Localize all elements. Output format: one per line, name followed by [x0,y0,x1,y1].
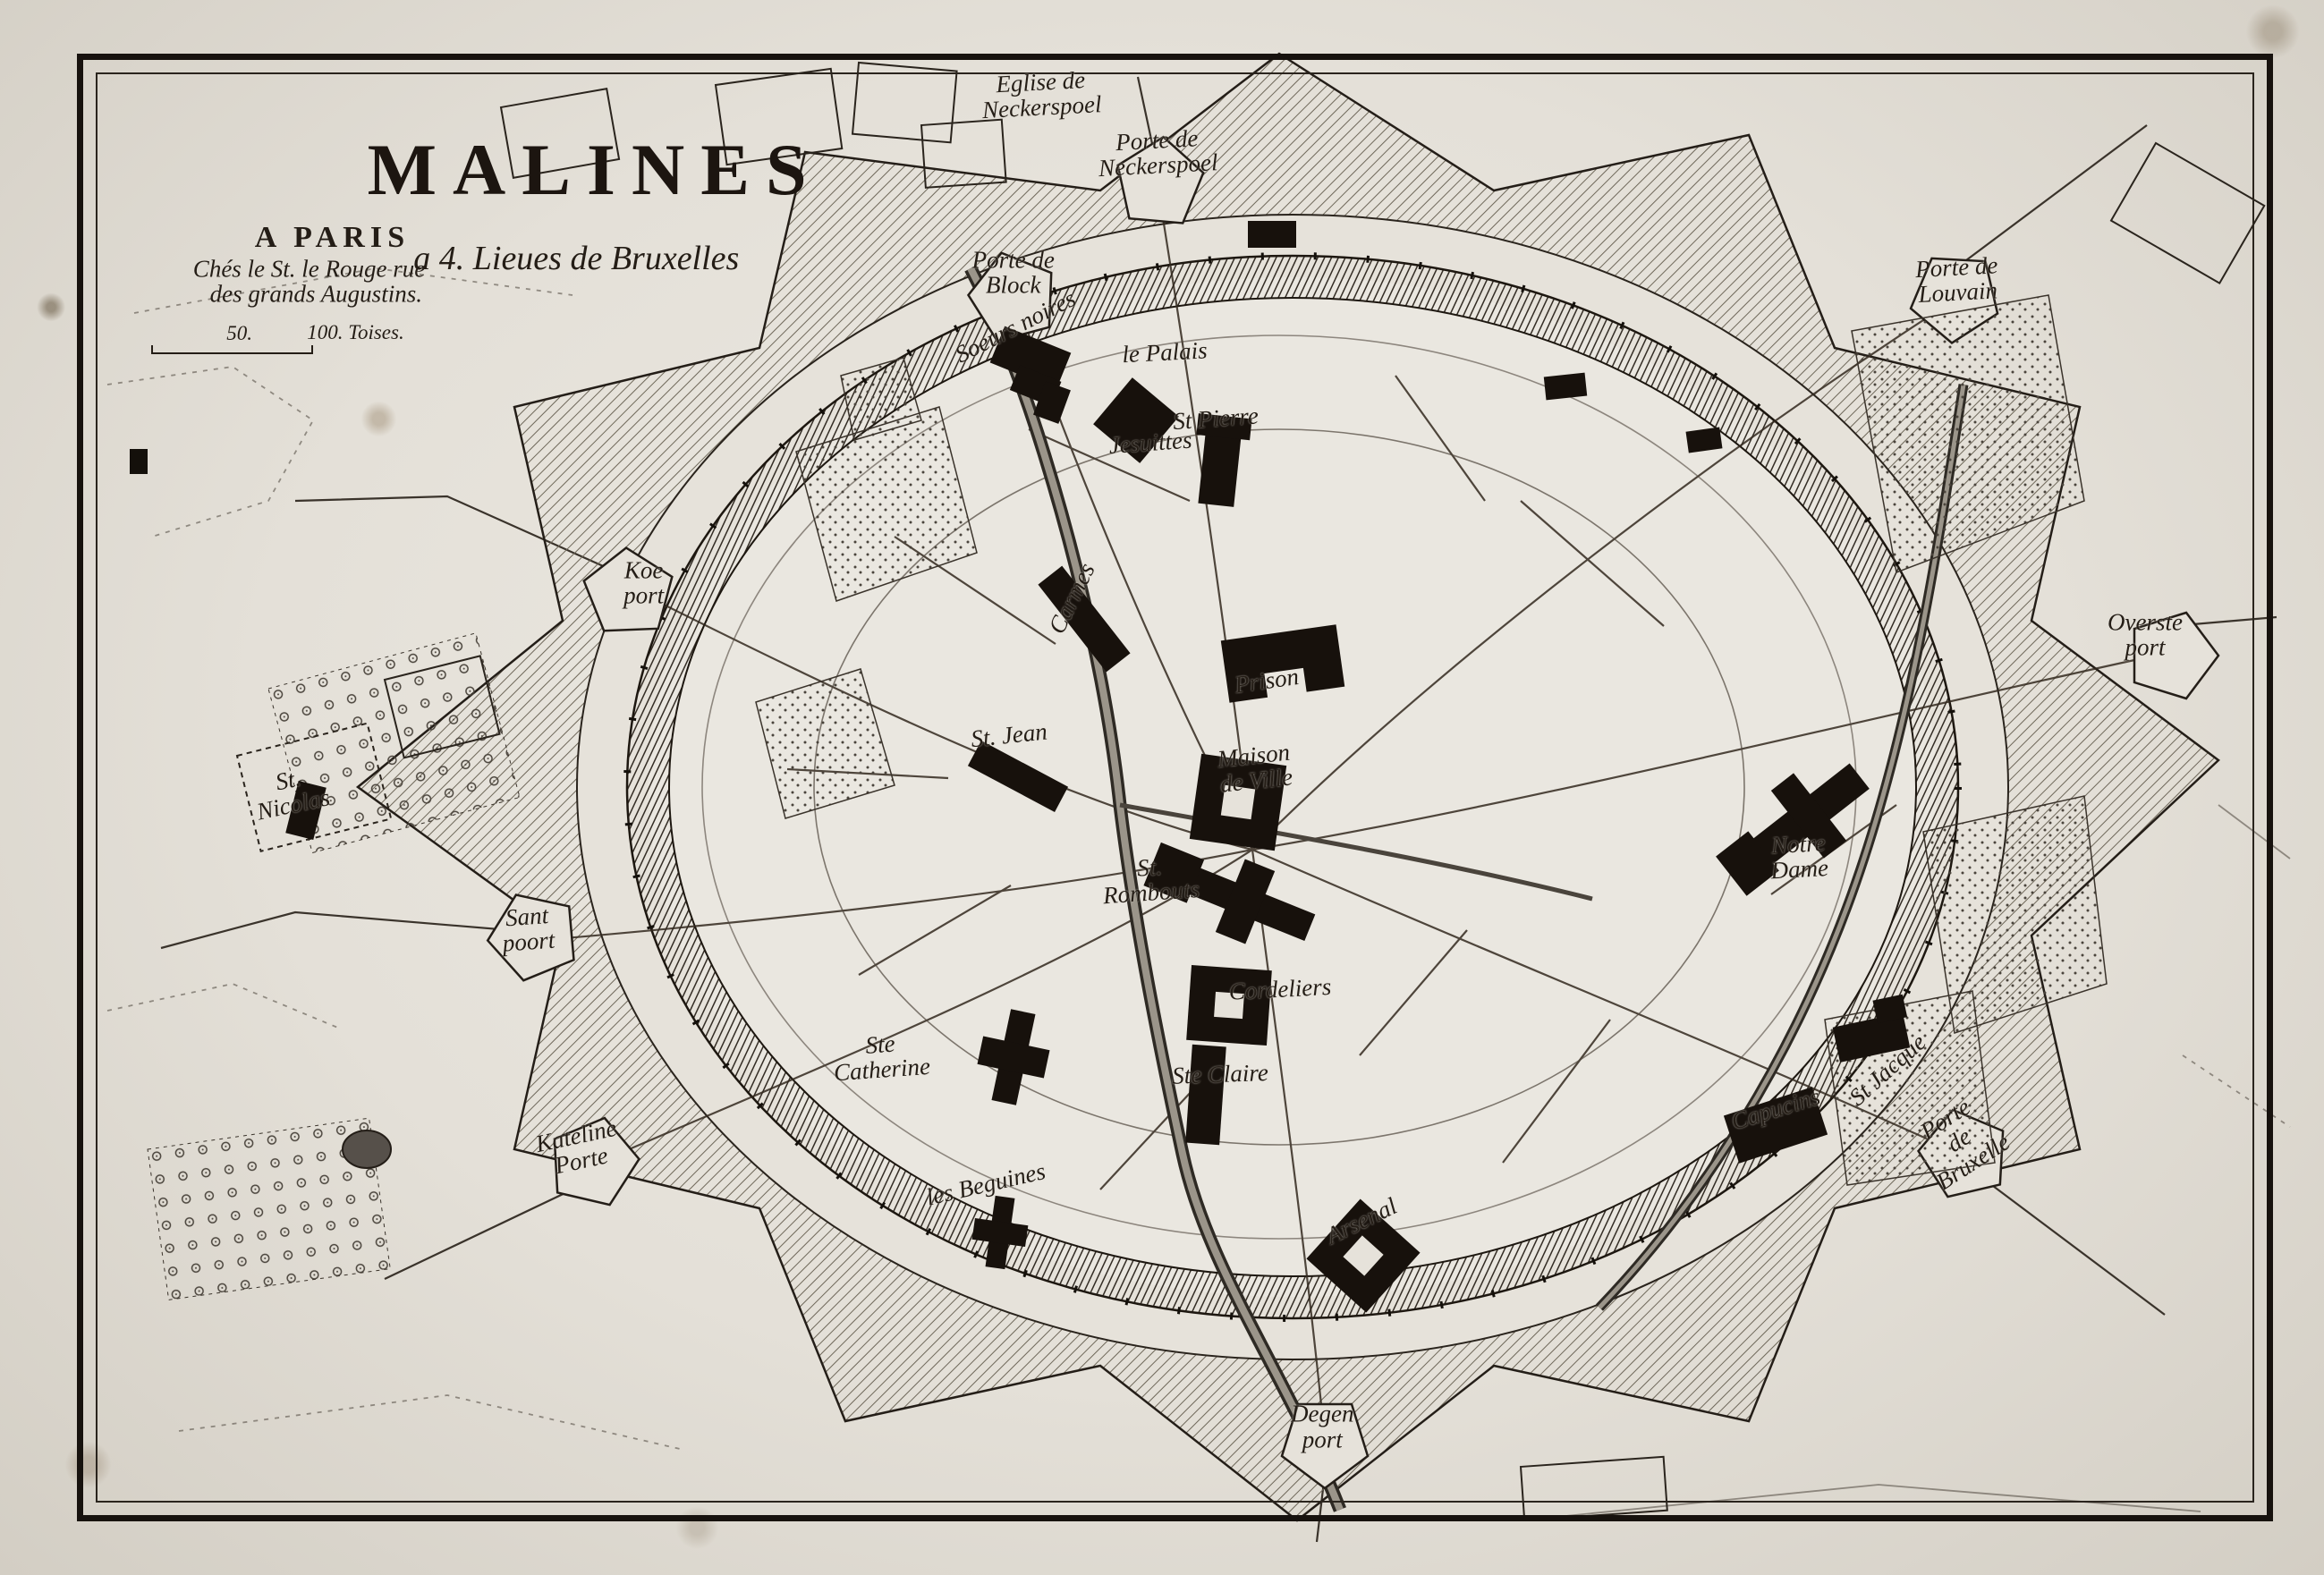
map-label-le-palais: le Palais [1121,338,1208,368]
map-label-koe-port: Koe port [623,557,664,608]
map-title: MALINES [368,128,823,212]
plate-edge-mark [130,449,148,474]
map-label-ste-claire: Ste Claire [1172,1060,1269,1088]
map-subtitle: a 4. Lieues de Bruxelles [413,239,739,278]
scale-bar [151,345,313,354]
map-label-notre-dame: Notre Dame [1768,830,1828,884]
map-label-st-rombouts: St. Rombouts [1100,851,1200,909]
map-sheet: MALINES a 4. Lieues de Bruxelles A PARIS… [0,0,2324,1575]
building-block [1544,373,1587,401]
map-label-porte-de-louvain: Porte de Louvain [1914,253,1999,308]
map-label-degen-port: Degen port [1291,1401,1353,1452]
imprint-publisher: Chés le St. le Rouge rue [193,256,425,284]
ste-claire-convent [1185,1045,1226,1145]
map-label-maison-de-ville: Maison de Ville [1217,740,1294,798]
map-label-eglise-de-neckerspoel: Eglise de Neckerspoel [980,66,1102,123]
orchards [148,633,520,1300]
imprint-city: A PARIS [255,221,411,255]
pond [343,1130,391,1168]
imprint-street: des grands Augustins. [210,281,422,309]
building-block [1248,221,1296,248]
map-label-porte-de-neckerspoel: Porte de Neckerspoel [1097,124,1218,182]
scale-mid-label: 50. [226,322,252,345]
map-label-overste-port: Overste port [2108,609,2183,660]
map-label-ste-catherine: Ste Catherine [831,1029,931,1086]
map-label-sant-poort: Sant poort [500,902,556,957]
map-label-cordeliers: Cordeliers [1229,974,1333,1004]
scale-end-label: 100. Toises. [307,321,403,344]
map-label-porte-de-block: Porte de Block [972,247,1055,298]
